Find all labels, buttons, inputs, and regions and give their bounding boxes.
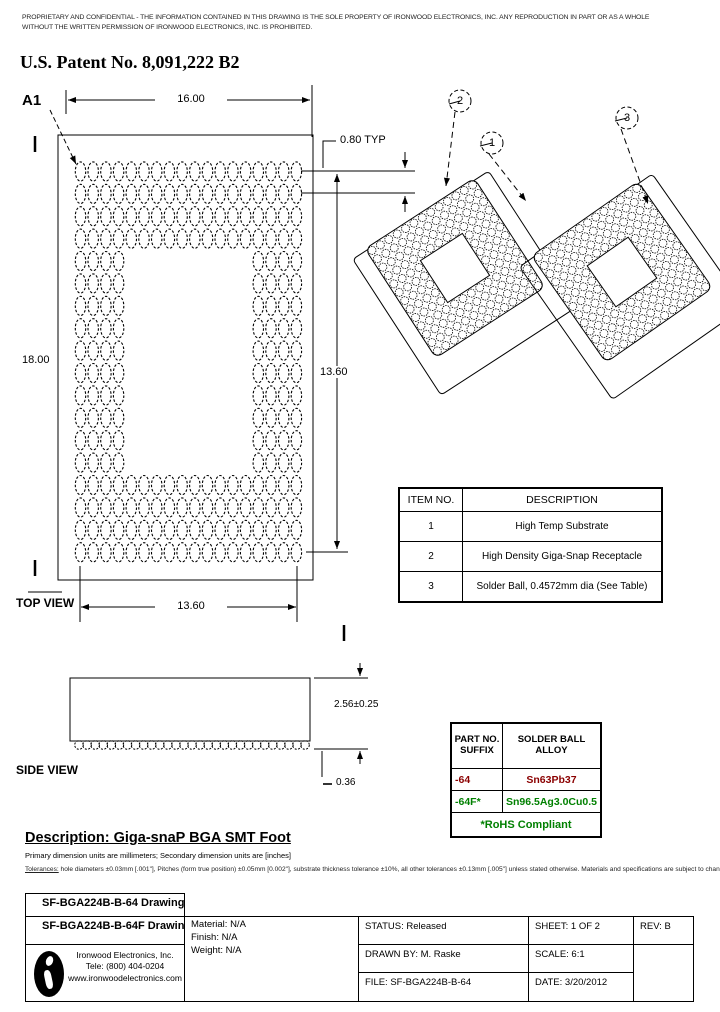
alloy-header-line2: SUFFIX — [454, 746, 500, 757]
drawn-by-value: DRAWN BY: M. Raske — [359, 945, 528, 960]
dim-package-width: 16.00 — [155, 93, 227, 105]
proprietary-disclaimer: PROPRIETARY AND CONFIDENTIAL - THE INFOR… — [22, 13, 707, 33]
dim-package-height: 18.00 — [20, 354, 52, 366]
drawn-by-cell: DRAWN BY: M. Raske — [358, 944, 529, 973]
scale-cell: SCALE: 6:1 — [528, 944, 634, 973]
file-value: FILE: SF-BGA224B-B-64 — [359, 973, 528, 988]
alloy-row-rohs: -64F* Sn96.5Ag3.0Cu0.5 — [451, 791, 601, 813]
disclaimer-line-1: PROPRIETARY AND CONFIDENTIAL - THE INFOR… — [22, 13, 707, 23]
company-website: www.ironwoodelectronics.com — [66, 973, 184, 984]
date-cell: DATE: 3/20/2012 — [528, 972, 634, 1002]
balloon-2-number: 2 — [450, 95, 470, 107]
item-2-no: 2 — [399, 542, 463, 572]
item-2-description: High Density Giga-Snap Receptacle — [463, 542, 663, 572]
iso-view-solder-ball-side — [518, 172, 720, 399]
company-info: Ironwood Electronics, Inc. Tele: (800) 4… — [66, 945, 184, 984]
scale-value: SCALE: 6:1 — [529, 945, 633, 960]
side-view-solder-balls — [75, 741, 310, 750]
dim-side-height: 2.56±0.25 — [332, 699, 380, 710]
dim-array-height: 13.60 — [318, 366, 350, 378]
patent-number: U.S. Patent No. 8,091,222 B2 — [20, 52, 240, 73]
rev-cell: REV: B — [633, 916, 694, 945]
part-number-1: SF-BGA224B-B-64 Drawing — [26, 894, 184, 909]
item-1-description: High Temp Substrate — [463, 512, 663, 542]
alloy-sn63pb37: Sn63Pb37 — [503, 769, 602, 791]
item-table-header-itemno: ITEM NO. — [399, 488, 463, 512]
item-table-row: 3 Solder Ball, 0.4572mm dia (See Table) — [399, 572, 662, 603]
suffix-64: -64 — [451, 769, 503, 791]
company-phone: Tele: (800) 404-0204 — [66, 961, 184, 972]
ironwood-logo — [34, 951, 64, 997]
finish-value: Finish: N/A — [185, 930, 358, 943]
status-cell: STATUS: Released — [358, 916, 529, 945]
part-number-1-cell: SF-BGA224B-B-64 Drawing — [25, 893, 185, 917]
top-view-ball-grid — [75, 162, 301, 562]
alloy-row-leaded: -64 Sn63Pb37 — [451, 769, 601, 791]
item-1-no: 1 — [399, 512, 463, 542]
top-view-label: TOP VIEW — [16, 596, 74, 610]
company-cell: Ironwood Electronics, Inc. Tele: (800) 4… — [25, 944, 185, 1002]
item-table-header-description: DESCRIPTION — [463, 488, 663, 512]
alloy-table-header-suffix: PART NO. SUFFIX — [451, 723, 503, 769]
balloon-1-number: 1 — [482, 137, 502, 149]
side-view-label: SIDE VIEW — [16, 763, 78, 777]
alloy-sac305: Sn96.5Ag3.0Cu0.5 — [503, 791, 602, 813]
dim-ball-pitch: 0.80 TYP — [338, 134, 388, 146]
description-heading: Description: Giga-snaP BGA SMT Foot — [25, 830, 291, 846]
item-3-no: 3 — [399, 572, 463, 603]
material-cell: Material: N/A Finish: N/A Weight: N/A — [184, 916, 359, 1002]
file-cell: FILE: SF-BGA224B-B-64 — [358, 972, 529, 1002]
iso-view-receptacle — [352, 169, 577, 395]
side-view-body — [70, 678, 310, 741]
units-note: Primary dimension units are millimeters;… — [25, 851, 291, 860]
weight-value: Weight: N/A — [185, 943, 358, 956]
item-description-table: ITEM NO. DESCRIPTION 1 High Temp Substra… — [398, 487, 663, 603]
part-number-2: SF-BGA224B-B-64F Drawing — [26, 917, 184, 932]
dim-solder-ball-height: 0.36 — [334, 777, 357, 788]
disclaimer-line-2: WITHOUT THE WRITTEN PERMISSION OF IRONWO… — [22, 23, 707, 33]
tolerances-label: Tolerances: — [25, 866, 59, 873]
item-table-row: 1 High Temp Substrate — [399, 512, 662, 542]
company-name: Ironwood Electronics, Inc. — [66, 950, 184, 961]
dim-array-width: 13.60 — [155, 600, 227, 612]
sheet-value: SHEET: 1 OF 2 — [529, 917, 633, 932]
rohs-compliant-note: *RoHS Compliant — [451, 813, 601, 838]
tolerances-note: Tolerances: hole diameters ±0.03mm [.001… — [25, 866, 720, 873]
suffix-64f: -64F* — [451, 791, 503, 813]
date-value: DATE: 3/20/2012 — [529, 973, 633, 988]
alloy-table-header-alloy: SOLDER BALL ALLOY — [503, 723, 602, 769]
drawing-sheet: PROPRIETARY AND CONFIDENTIAL - THE INFOR… — [0, 0, 720, 1012]
solder-ball-alloy-table: PART NO. SUFFIX SOLDER BALL ALLOY -64 Sn… — [450, 722, 602, 838]
tolerances-text: hole diameters ±0.03mm [.001"], Pitches … — [59, 866, 720, 873]
balloon-3-number: 3 — [617, 112, 637, 124]
status-value: STATUS: Released — [359, 917, 528, 932]
part-number-2-cell: SF-BGA224B-B-64F Drawing — [25, 916, 185, 945]
item-3-description: Solder Ball, 0.4572mm dia (See Table) — [463, 572, 663, 603]
material-value: Material: N/A — [185, 917, 358, 930]
rev-empty-cell — [633, 944, 694, 1002]
rev-value: REV: B — [634, 917, 693, 932]
pin-a1-label: A1 — [22, 92, 41, 109]
sheet-cell: SHEET: 1 OF 2 — [528, 916, 634, 945]
item-table-row: 2 High Density Giga-Snap Receptacle — [399, 542, 662, 572]
